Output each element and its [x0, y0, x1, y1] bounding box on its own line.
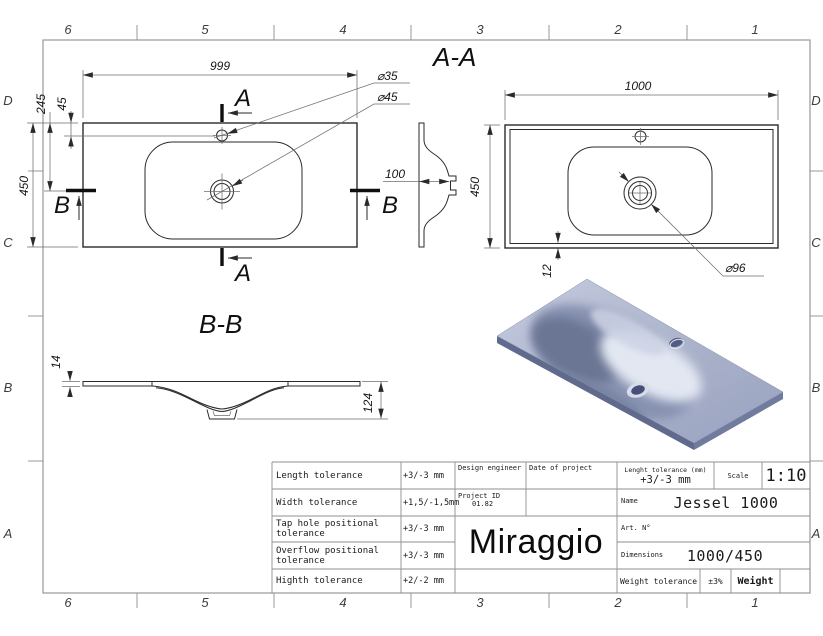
grid-row-label: D	[3, 93, 12, 108]
tolerance-row-value: +3/-3 mm	[403, 462, 454, 489]
dim-tap-edge: 45	[55, 97, 69, 111]
dim-aa-width: 1000	[625, 79, 652, 93]
scale-value: 1:10	[762, 462, 810, 489]
render-3d	[497, 279, 783, 450]
dimensions-label: Dimensions	[621, 551, 663, 559]
dim-bb-thickness: 14	[49, 355, 63, 369]
section-aa: A-A 1000 450 12 ⌀96	[431, 42, 778, 278]
dim-tap-offset: 245	[34, 94, 48, 115]
grid-row-label: C	[3, 235, 13, 250]
cut-label-a: A	[233, 85, 251, 112]
grid-col-label: 2	[613, 595, 622, 610]
weight-label: Weight	[731, 569, 780, 593]
grid-col-label: 4	[339, 595, 346, 610]
bb-slab-left	[83, 382, 152, 387]
grid-col-label: 6	[64, 595, 72, 610]
tolerance-row-label: Width tolerance	[276, 489, 398, 516]
tolerance-row-value: +3/-3 mm	[403, 542, 454, 569]
top-view: 999 450 245 45 A A B B	[17, 59, 410, 287]
cut-label-b: B	[54, 192, 70, 219]
section-aa-title: A-A	[431, 42, 476, 72]
grid-col-label: 5	[201, 595, 209, 610]
section-bb: B-B 14 124	[49, 309, 388, 419]
weight-tolerance-value: ±3%	[700, 569, 731, 593]
dim-aa-rim: 12	[540, 264, 554, 278]
tolerance-row-label: Highth tolerance	[276, 569, 398, 593]
profile-section: 100	[383, 123, 456, 247]
grid-col-label: 1	[751, 22, 758, 37]
grid-row-label: A	[3, 526, 13, 541]
length-tolerance-cell: Lenght tolerance (mm) +3/-3 mm	[617, 462, 714, 489]
dim-top-width: 999	[210, 59, 230, 73]
grid-col-label: 1	[751, 595, 758, 610]
project-id: Project ID 01.82	[458, 492, 500, 508]
project-id-value: 01.82	[472, 500, 500, 508]
grid-col-label: 2	[613, 22, 622, 37]
tolerance-row-label: Length tolerance	[276, 462, 398, 489]
dim-aa-height: 450	[468, 177, 482, 197]
name-value: Jessel 1000	[645, 489, 807, 516]
tolerance-row-value: +3/-3 mm	[403, 516, 454, 542]
grid-col-label: 4	[339, 22, 346, 37]
dimensions-value: 1000/450	[660, 542, 790, 569]
grid-row-label: D	[811, 93, 820, 108]
cut-marker-b: B B	[54, 191, 398, 221]
date-of-project-label: Date of project	[529, 464, 592, 472]
project-id-label: Project ID	[458, 492, 500, 500]
cut-label-a: A	[233, 260, 251, 287]
bb-drain-stub	[207, 410, 237, 420]
cut-marker-a: A A	[222, 85, 252, 287]
grid-row-label: A	[811, 526, 821, 541]
grid-row-label: B	[812, 380, 821, 395]
grid-col-label: 3	[476, 22, 484, 37]
dim-overflow-dia: ⌀96	[725, 261, 746, 275]
cut-label-b: B	[382, 192, 398, 219]
tolerance-row-label: Tap hole positional tolerance	[276, 516, 398, 542]
grid-col-label: 3	[476, 595, 484, 610]
brand-logo: Miraggio	[455, 514, 617, 570]
bb-slab-right	[288, 382, 360, 387]
tolerance-row-label: Overflow positional tolerance	[276, 542, 398, 569]
tolerance-row-value: +2/-2 mm	[403, 569, 454, 593]
tolerance-row-value: +1,5/-1,5mm	[403, 489, 454, 516]
length-tolerance-value: +3/-3 mm	[640, 474, 691, 486]
grid-col-label: 6	[64, 22, 72, 37]
section-bb-title: B-B	[199, 309, 242, 339]
name-label: Name	[621, 497, 638, 505]
design-engineer-label: Design engineer	[458, 464, 521, 472]
art-number-label: Art. N°	[621, 524, 651, 532]
grid-row-label: C	[811, 235, 821, 250]
dim-tap-dia: ⌀35	[377, 69, 398, 83]
grid-col-label: 5	[201, 22, 209, 37]
scale-label: Scale	[714, 462, 762, 489]
drawing-sheet: 6 5 4 3 2 1 6 5 4 3 2 1 D C B A D C B A	[0, 0, 823, 636]
length-tolerance-label: Lenght tolerance (mm)	[624, 466, 706, 474]
grid-row-label: B	[4, 380, 13, 395]
dim-profile-depth: 100	[385, 167, 405, 181]
dim-bb-depth: 124	[361, 393, 375, 413]
dim-drain-dia: ⌀45	[377, 90, 398, 104]
weight-tolerance-label: Weight tolerance	[617, 569, 700, 593]
dim-top-height: 450	[17, 176, 31, 196]
